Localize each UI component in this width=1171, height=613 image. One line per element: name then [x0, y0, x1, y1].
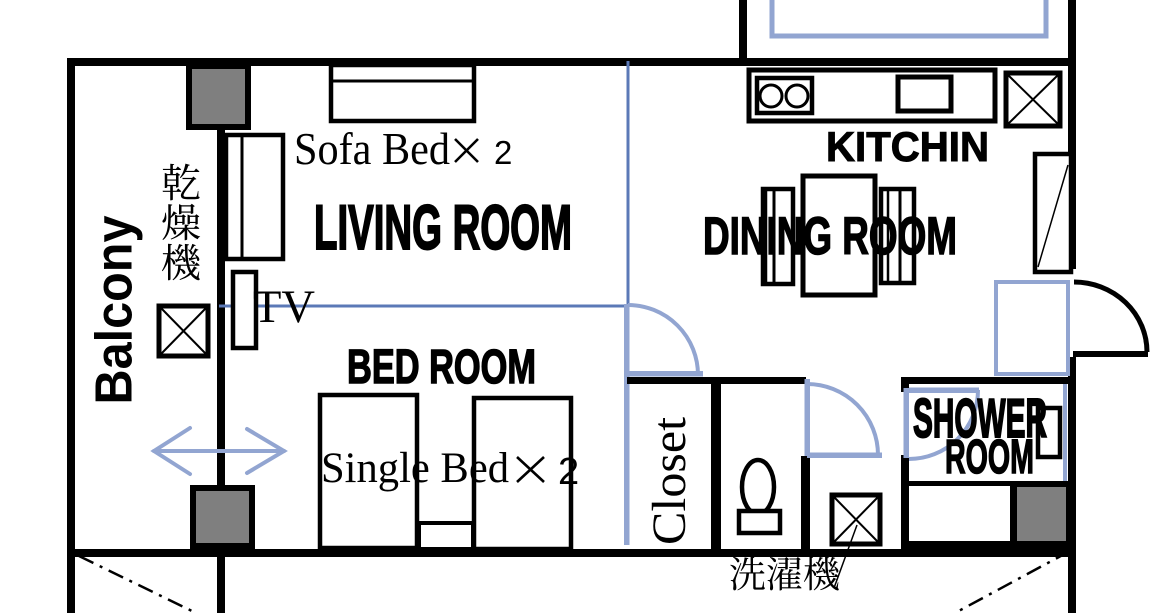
svg-text:Balcony: Balcony — [86, 215, 144, 404]
svg-text:Sofa Bed: Sofa Bed — [294, 124, 450, 174]
svg-text:LIVING ROOM: LIVING ROOM — [314, 193, 572, 263]
svg-text:2: 2 — [558, 451, 579, 493]
svg-text:DINING ROOM: DINING ROOM — [703, 207, 957, 266]
svg-text:Closet: Closet — [643, 416, 696, 545]
svg-text:TV: TV — [253, 281, 315, 333]
svg-text:2: 2 — [494, 134, 512, 171]
svg-text:BED ROOM: BED ROOM — [347, 341, 536, 394]
svg-text:ROOM: ROOM — [945, 431, 1034, 484]
svg-text:Single Bed: Single Bed — [321, 445, 509, 492]
svg-text:KITCHIN: KITCHIN — [826, 123, 989, 170]
